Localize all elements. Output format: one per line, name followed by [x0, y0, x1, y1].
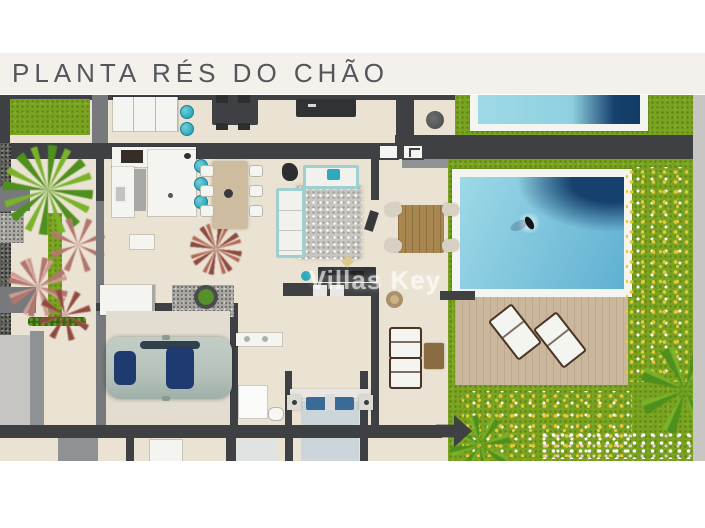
chair: [216, 123, 228, 130]
wall-segment: [226, 438, 236, 461]
kitchen-sink: [114, 185, 127, 203]
potted-plant: [426, 111, 444, 129]
wall-segment: [0, 335, 30, 427]
neighbour-pool-water: [478, 95, 640, 124]
wardrobe-divider: [155, 97, 156, 131]
bed-runner: [325, 394, 335, 410]
decor-plant: [282, 163, 298, 181]
sun-lounger: [389, 327, 422, 359]
flower-bed: [540, 431, 693, 459]
wall-segment: [0, 95, 10, 143]
car-mirror: [162, 396, 170, 401]
palm-tree-red: [190, 223, 242, 275]
dining-chair: [200, 205, 214, 217]
room-floor: [236, 440, 278, 461]
wall-segment: [96, 311, 106, 429]
sofa-cushions: [279, 191, 302, 255]
shower-tray: [378, 144, 399, 160]
dining-chair: [200, 185, 214, 197]
floor-plan-render: Villas Key: [0, 95, 705, 461]
chair: [238, 123, 250, 130]
car-windshield: [166, 347, 194, 389]
sofa-pillow: [327, 169, 340, 180]
wardrobe-divider: [133, 97, 134, 131]
kitchen-island: [148, 150, 196, 216]
vanity: [236, 333, 282, 346]
storage-unit: [130, 235, 154, 249]
wall-segment: [96, 143, 104, 201]
side-table: [424, 343, 444, 369]
chair: [238, 95, 250, 103]
bar-stool: [180, 122, 194, 136]
watermark: Villas Key: [268, 265, 482, 295]
wall-segment: [360, 438, 368, 461]
palm-tree-red: [39, 289, 91, 341]
page-title: PLANTA RÉS DO CHÃO: [12, 58, 389, 89]
title-bar: PLANTA RÉS DO CHÃO: [0, 53, 705, 94]
wall-segment: [58, 438, 98, 461]
toilet: [268, 407, 284, 421]
perimeter-wall: [693, 95, 705, 461]
wall-segment: [30, 331, 44, 425]
wardrobe: [113, 97, 178, 131]
tv-bench: [296, 99, 356, 117]
wall-band: [0, 425, 442, 438]
outdoor-bench: [364, 210, 379, 232]
sun-lounger: [389, 357, 422, 389]
floor-plan-page: PLANTA RÉS DO CHÃO: [0, 0, 705, 528]
centerpiece: [224, 189, 233, 198]
sink: [262, 336, 268, 342]
grass-area: [10, 99, 90, 135]
lamp: [292, 400, 297, 405]
bed-pillow: [332, 397, 354, 410]
dining-chair: [249, 205, 263, 217]
cooktop: [121, 150, 143, 163]
outdoor-table: [398, 205, 444, 253]
pool-water: [460, 177, 624, 289]
tv-bench-detail: [308, 104, 316, 107]
chair: [216, 95, 228, 103]
kettle: [184, 153, 191, 159]
lamp: [364, 400, 369, 405]
car-mirror: [162, 335, 170, 340]
bar-stool: [180, 105, 194, 119]
sink: [244, 336, 250, 342]
counter-item: [168, 193, 173, 198]
wall-segment: [92, 95, 108, 143]
fixture: [150, 440, 182, 461]
bed-duvet-lower: [301, 439, 359, 461]
wall-segment: [285, 438, 293, 461]
outdoor-chair: [384, 238, 403, 253]
shower-fixture: [409, 148, 420, 157]
potted-plant: [194, 285, 218, 309]
dining-chair: [249, 185, 263, 197]
shower: [238, 385, 268, 419]
boundary-wall: [0, 143, 705, 159]
dining-chair: [249, 165, 263, 177]
wall-segment: [126, 438, 134, 461]
dining-chair: [200, 165, 214, 177]
kitchen-cabinets: [134, 169, 146, 211]
car-rear-window: [114, 351, 136, 385]
